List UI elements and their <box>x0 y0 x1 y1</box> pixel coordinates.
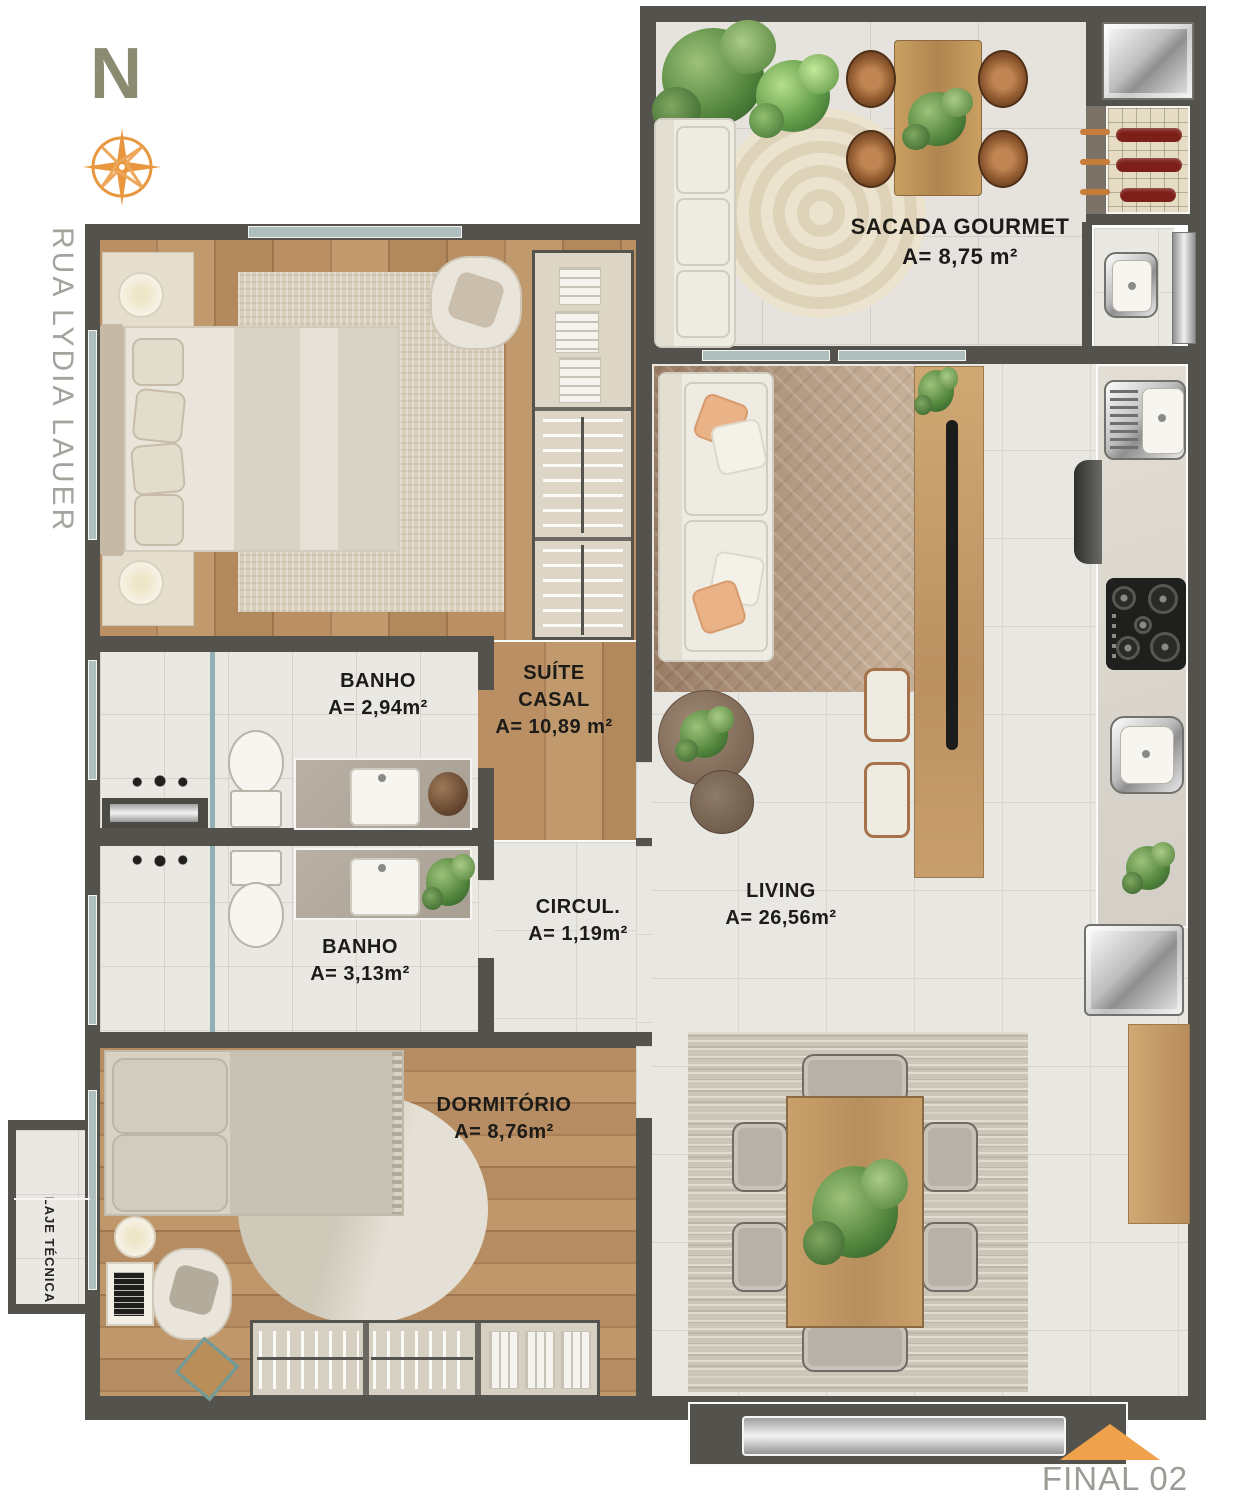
dining-chair-left-1 <box>732 1122 788 1192</box>
dorm-wardrobe-divider-2 <box>475 1323 481 1395</box>
dorm-lamp <box>114 1216 156 1258</box>
room-area: A= 8,75 m² <box>840 242 1080 272</box>
suite-rod-2 <box>581 545 584 635</box>
suite-bed <box>124 326 400 552</box>
dorm-pillow-2 <box>112 1134 228 1212</box>
dorm-side-table <box>106 1262 154 1326</box>
wall-dorm-living <box>636 1118 652 1400</box>
label-banho-suite: BANHO A= 2,94m² <box>298 668 458 722</box>
bar-stool-1 <box>864 668 910 742</box>
label-circulacao: CIRCUL. A= 1,19m² <box>498 894 658 948</box>
unit-label: FINAL 02 <box>1030 1460 1200 1498</box>
sacada-chair-2 <box>846 130 896 188</box>
dining-chair-left-2 <box>732 1222 788 1292</box>
room-name: DORMITÓRIO <box>414 1092 594 1119</box>
window-suite-left <box>88 330 97 540</box>
bar-stool-2 <box>864 762 910 838</box>
nook-sink-icon <box>1104 252 1158 318</box>
dining-chair-bottom <box>802 1322 908 1372</box>
kitchen-sink-2 <box>1110 716 1184 794</box>
kitchen-faucet-1 <box>1158 414 1166 422</box>
suite-wardrobe <box>532 250 634 640</box>
dorm-folded-2 <box>525 1331 555 1389</box>
sacada-plant-large <box>662 28 764 126</box>
dorm-blanket-fringe <box>392 1052 402 1214</box>
window-banho-social <box>88 895 97 1025</box>
island-plant <box>918 370 954 412</box>
shower-fixtures-banho-suite <box>130 772 190 792</box>
toilet-banho-suite-tank <box>230 790 282 828</box>
wall-banhos-corridor-c <box>478 958 494 1048</box>
shower-niche-vent <box>110 804 198 822</box>
kitchen-sink-drainboard <box>1104 380 1186 460</box>
label-banho-social: BANHO A= 3,13m² <box>280 934 440 988</box>
wall-right-exterior <box>1188 6 1206 1420</box>
door-gap-dormitorio <box>636 1046 652 1118</box>
vanity-banho-suite <box>294 758 472 830</box>
room-name: SACADA GOURMET <box>840 212 1080 242</box>
dorm-rod-2 <box>371 1357 473 1360</box>
label-suite-casal: SUÍTE CASAL A= 10,89 m² <box>474 660 634 741</box>
shaft-duct <box>1102 22 1194 100</box>
laje-wall-top <box>8 1120 96 1130</box>
suite-rod-1 <box>581 417 584 533</box>
barbecue-grill-icon <box>1106 106 1190 214</box>
suite-pillow-3 <box>130 442 186 496</box>
dorm-wardrobe-divider-1 <box>363 1323 369 1395</box>
washer-icon <box>1084 924 1184 1016</box>
suite-bed-headboard <box>100 324 124 556</box>
burner-1 <box>1112 586 1136 610</box>
suite-folded-2 <box>555 311 599 353</box>
room-area: A= 8,76m² <box>414 1119 594 1146</box>
laje-divider <box>14 1198 90 1200</box>
skewer-2 <box>1116 158 1182 172</box>
living-sofa-back <box>660 374 682 660</box>
skewer-handle-3 <box>1080 189 1110 195</box>
sacada-table-plant <box>908 92 966 146</box>
north-letter: N <box>86 38 146 110</box>
dining-chair-right-1 <box>922 1122 978 1192</box>
dining-table-plant <box>812 1166 898 1258</box>
wall-suite-sacada <box>636 224 656 362</box>
street-name: RUA LYDIA LAUER <box>42 227 82 497</box>
fridge-icon <box>1074 460 1102 564</box>
sacada-sofa-back <box>656 120 674 346</box>
vanity-banho-social <box>294 848 472 920</box>
entry-duct <box>1172 232 1196 344</box>
dorm-rod-1 <box>257 1357 363 1360</box>
door-gap-suite <box>636 762 652 838</box>
faucet-banho-social <box>378 864 386 872</box>
laundry-cabinet <box>1128 1024 1190 1224</box>
sacada-chair-3 <box>978 50 1028 108</box>
wall-nook-left <box>1082 222 1092 352</box>
room-area: A= 1,19m² <box>498 921 658 948</box>
toilet-banho-social-tank <box>230 850 282 886</box>
final-arrow-icon <box>1060 1424 1160 1460</box>
suite-wardrobe-divider-1 <box>535 407 631 411</box>
skewer-1 <box>1116 128 1182 142</box>
suite-lamp-bottom <box>118 560 164 606</box>
vanity-plant-banho-social <box>426 858 470 906</box>
dorm-bed <box>104 1050 404 1216</box>
room-name: CIRCUL. <box>498 894 658 921</box>
dorm-pillow-1 <box>112 1058 228 1134</box>
wall-banho-dorm <box>85 1032 640 1048</box>
room-area: A= 10,89 m² <box>474 714 634 741</box>
shower-fixtures-banho-social <box>130 850 190 870</box>
sliding-door-glass-2 <box>838 350 966 361</box>
sacada-chair-4 <box>978 130 1028 188</box>
nook-sink-faucet <box>1128 282 1136 290</box>
room-area: A= 26,56m² <box>701 905 861 932</box>
sacada-sofa-cushion-1 <box>676 126 730 194</box>
bottom-vent <box>742 1416 1066 1456</box>
wall-suite-living <box>636 362 652 762</box>
dorm-folded-3 <box>561 1331 591 1389</box>
drainboard-lines <box>1110 390 1138 450</box>
room-area: A= 2,94m² <box>298 695 458 722</box>
suite-folded-1 <box>559 267 601 305</box>
sacada-plant-small <box>756 60 830 132</box>
burner-2 <box>1148 584 1178 614</box>
suite-window <box>248 226 462 238</box>
sacada-sofa-cushion-3 <box>676 270 730 338</box>
label-sacada-gourmet: SACADA GOURMET A= 8,75 m² <box>840 212 1080 271</box>
room-area: A= 3,13m² <box>280 961 440 988</box>
dorm-book <box>114 1272 144 1316</box>
suite-pillow-1 <box>132 338 184 386</box>
compass-rose-icon <box>81 126 163 208</box>
skewer-3 <box>1120 188 1176 202</box>
label-living: LIVING A= 26,56m² <box>701 878 861 932</box>
suite-folded-3 <box>559 357 601 403</box>
wall-corridor-living-stub <box>636 838 652 846</box>
door-gap-banho-social <box>478 880 494 958</box>
wall-suite-banho <box>98 636 490 652</box>
wall-banho-banho <box>98 828 490 846</box>
wall-banhos-corridor-b <box>478 768 494 880</box>
vanity-plant-banho-suite <box>428 772 468 816</box>
kitchen-plant <box>1126 846 1170 890</box>
coffee-table-plant <box>680 710 728 758</box>
kitchen-faucet-2 <box>1142 750 1150 758</box>
shower-glass-banho-suite <box>210 652 215 828</box>
skewer-handle-2 <box>1080 159 1110 165</box>
dorm-hangers-1 <box>259 1331 359 1389</box>
cooktop-knobs <box>1112 614 1116 660</box>
living-sofa <box>658 372 774 662</box>
label-dormitorio: DORMITÓRIO A= 8,76m² <box>414 1092 594 1146</box>
room-name: LIVING <box>701 878 861 905</box>
dining-chair-right-2 <box>922 1222 978 1292</box>
sliding-door-glass-1 <box>702 350 830 361</box>
sacada-sofa <box>654 118 736 348</box>
coffee-table-small <box>690 770 754 834</box>
suite-pillow-2 <box>131 388 186 445</box>
toilet-banho-social-bowl <box>228 882 284 948</box>
skewer-handle-1 <box>1080 129 1110 135</box>
sacada-sofa-cushion-2 <box>676 198 730 266</box>
floor-plan: SACADA GOURMET A= 8,75 m² SUÍTE CASAL A=… <box>0 0 1246 1500</box>
toilet-banho-suite-bowl <box>228 730 284 796</box>
faucet-banho-suite <box>378 774 386 782</box>
burner-3 <box>1134 616 1152 634</box>
tv-icon <box>946 420 958 750</box>
living-pillow-white-1 <box>709 417 768 476</box>
dorm-hangers-2 <box>373 1331 471 1389</box>
laje-tecnica-label: LAJE TÉCNICA <box>39 1158 59 1342</box>
suite-wardrobe-divider-2 <box>535 537 631 541</box>
burner-5 <box>1150 632 1180 662</box>
dorm-folded-1 <box>489 1331 519 1389</box>
dorm-blanket <box>230 1052 394 1214</box>
room-name: SUÍTE CASAL <box>508 660 600 714</box>
window-dormitorio <box>88 1090 97 1290</box>
room-name: BANHO <box>280 934 440 961</box>
burner-4 <box>1116 636 1140 660</box>
suite-pillow-4 <box>134 494 184 546</box>
room-name: BANHO <box>298 668 458 695</box>
suite-duvet-fold <box>300 328 338 550</box>
laje-wall-left <box>8 1120 16 1312</box>
dorm-wardrobe <box>250 1320 600 1398</box>
cooktop-icon <box>1106 578 1186 670</box>
window-banho-suite <box>88 660 97 780</box>
sacada-chair-1 <box>846 50 896 108</box>
shower-glass-banho-social <box>210 846 215 1032</box>
suite-lamp-top <box>118 272 164 318</box>
wall-bottom-left <box>85 1396 650 1420</box>
